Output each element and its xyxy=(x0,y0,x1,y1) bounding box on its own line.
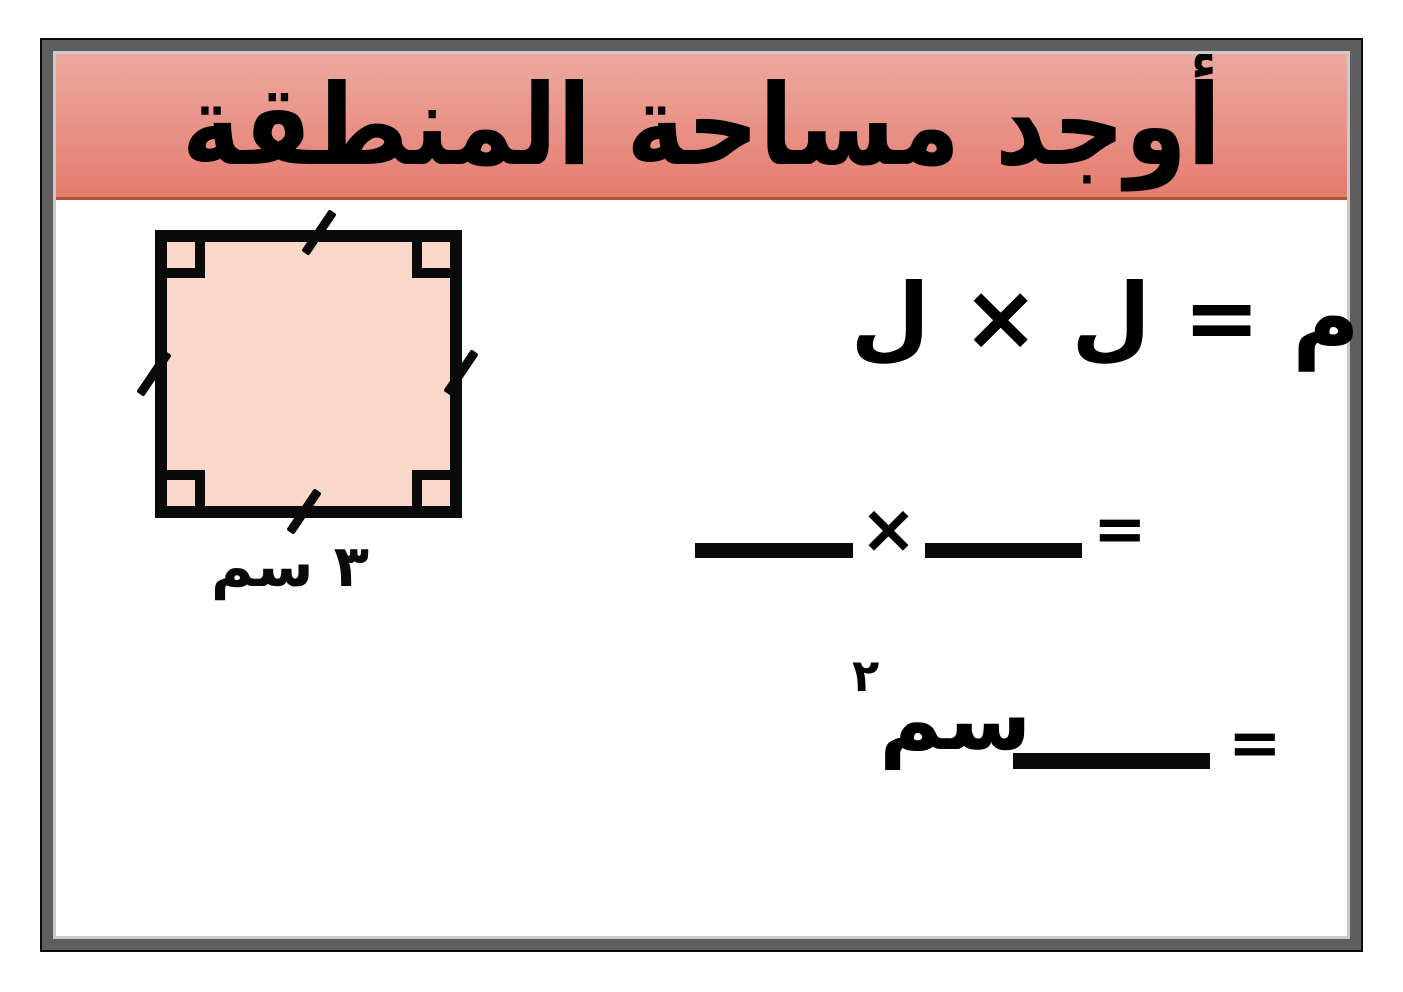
header-banner: أوجد مساحة المنطقة xyxy=(56,54,1347,200)
answer-line-equals-sign: = xyxy=(1228,712,1282,776)
unit-text: سم xyxy=(879,670,1031,770)
page-title: أوجد مساحة المنطقة xyxy=(182,70,1222,182)
work-line-times-sign: × xyxy=(860,496,917,564)
unit-exponent: ٢ xyxy=(852,649,879,702)
answer-blank xyxy=(1013,753,1210,769)
unit-label: سم٢ xyxy=(852,676,1031,763)
answer-blank xyxy=(695,543,853,558)
right-angle-marker xyxy=(167,470,205,506)
right-angle-marker xyxy=(412,470,450,506)
side-length-label: ٣ سم xyxy=(200,535,380,599)
answer-blank xyxy=(925,543,1082,558)
right-angle-marker xyxy=(167,242,205,278)
area-formula: م = ل × ل xyxy=(885,248,1325,386)
worksheet-page: أوجد مساحة المنطقة ٣ سم م = ل × ل = × = … xyxy=(0,0,1403,992)
work-line-equals-sign: = xyxy=(1093,498,1147,562)
square-shape xyxy=(155,230,462,518)
right-angle-marker xyxy=(412,242,450,278)
